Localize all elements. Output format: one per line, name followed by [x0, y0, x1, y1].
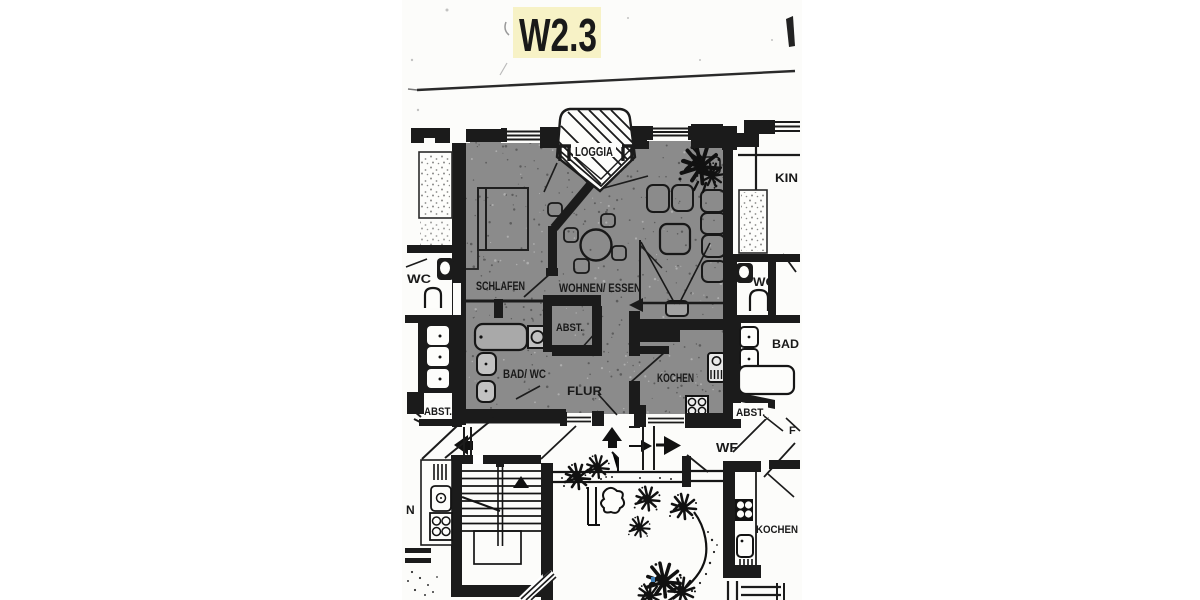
svg-text:ABST.: ABST. — [424, 406, 452, 418]
svg-text:FLUR: FLUR — [567, 384, 602, 398]
svg-text:KIN: KIN — [775, 171, 798, 185]
svg-text:WF: WF — [716, 440, 738, 455]
svg-text:WC: WC — [407, 272, 431, 286]
svg-text:KOCHEN: KOCHEN — [657, 371, 694, 385]
svg-text:W2.3: W2.3 — [519, 9, 597, 61]
svg-text:BAD: BAD — [772, 337, 799, 351]
svg-text:ABST.: ABST. — [556, 322, 583, 334]
svg-text:SCHLAFEN: SCHLAFEN — [476, 279, 525, 293]
svg-text:ABST.: ABST. — [736, 407, 765, 419]
svg-text:BAD/ WC: BAD/ WC — [503, 367, 546, 381]
svg-text:WOHNEN/ ESSEN: WOHNEN/ ESSEN — [559, 281, 641, 295]
svg-text:N: N — [406, 503, 415, 517]
svg-text:KOCHEN: KOCHEN — [756, 524, 798, 536]
svg-text:LOGGIA: LOGGIA — [575, 145, 613, 159]
